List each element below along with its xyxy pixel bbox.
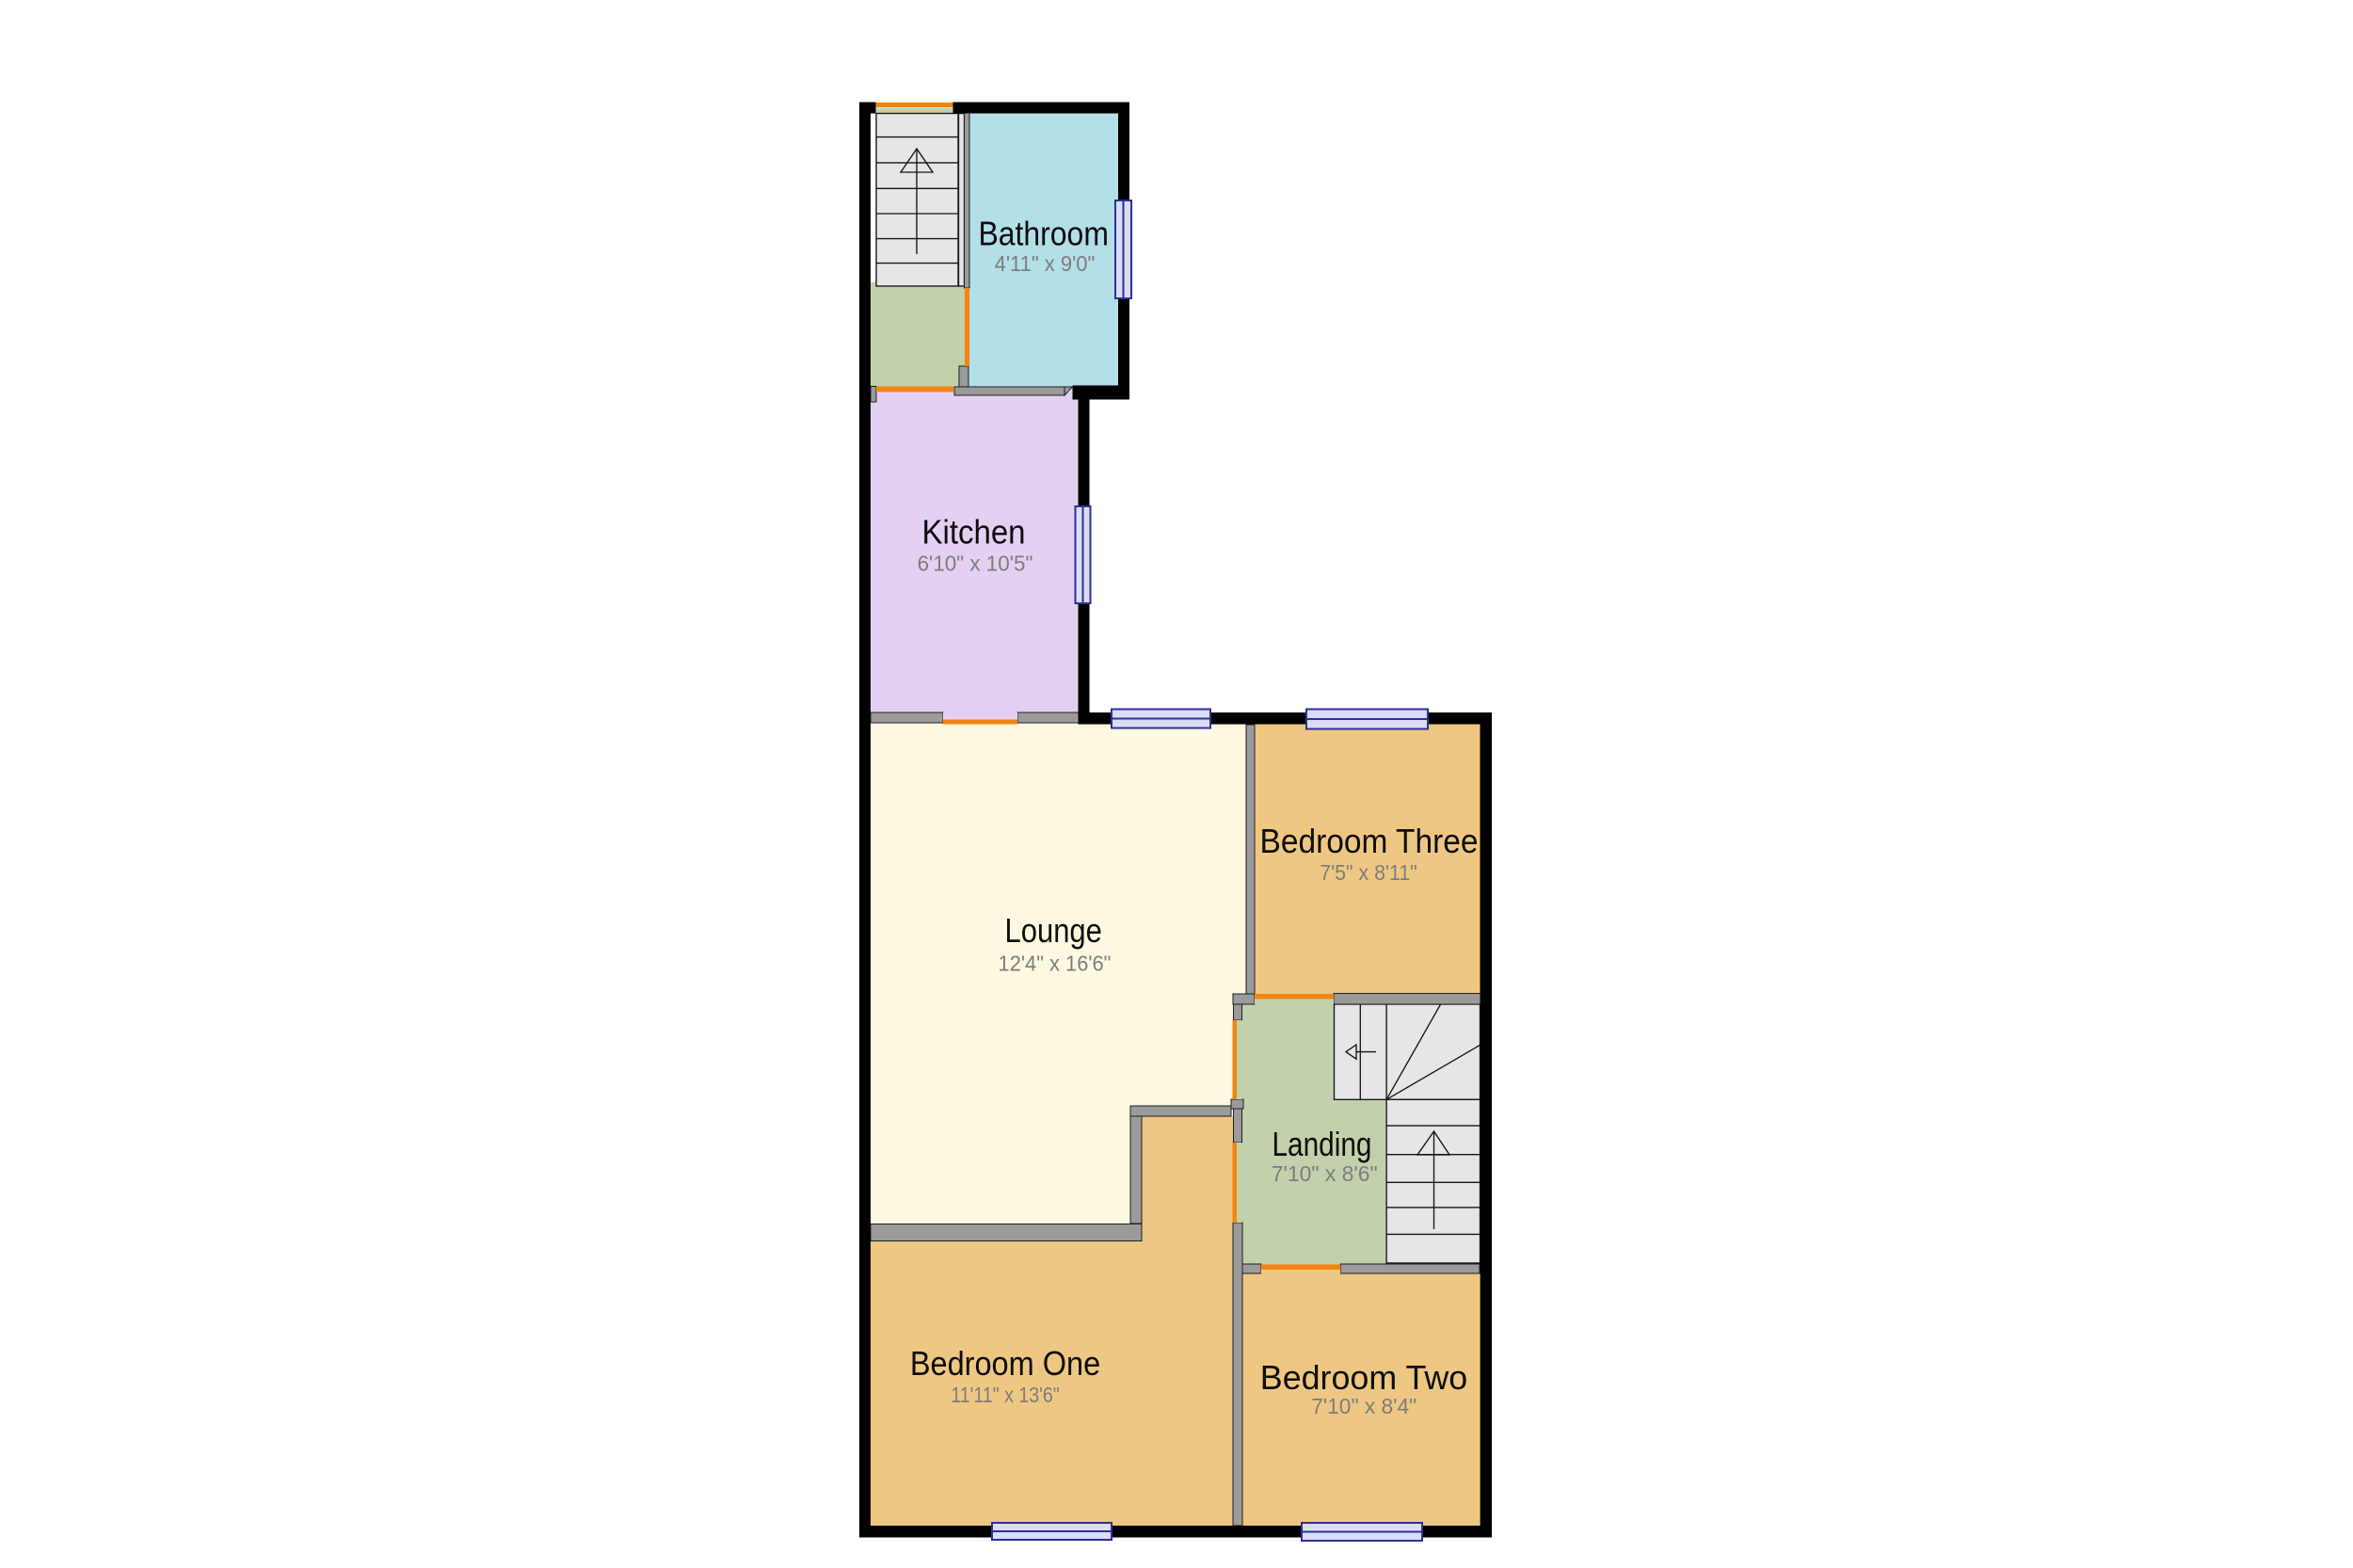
svg-text:12'4" x 16'6": 12'4" x 16'6" (999, 952, 1112, 976)
svg-text:Bedroom Two: Bedroom Two (1260, 1358, 1467, 1397)
svg-text:Lounge: Lounge (1005, 911, 1102, 950)
svg-text:7'5" x 8'11": 7'5" x 8'11" (1320, 860, 1417, 885)
svg-text:Kitchen: Kitchen (922, 513, 1026, 552)
svg-text:Bedroom Three: Bedroom Three (1260, 822, 1479, 860)
svg-text:Bathroom: Bathroom (978, 215, 1109, 253)
svg-text:4'11" x 9'0": 4'11" x 9'0" (995, 251, 1096, 276)
svg-text:Bedroom One: Bedroom One (910, 1344, 1100, 1383)
svg-text:6'10" x 10'5": 6'10" x 10'5" (918, 552, 1033, 576)
svg-text:7'10" x 8'6": 7'10" x 8'6" (1272, 1161, 1378, 1186)
svg-text:Landing: Landing (1273, 1125, 1372, 1163)
svg-text:7'10" x 8'4": 7'10" x 8'4" (1311, 1394, 1417, 1418)
svg-text:11'11" x 13'6": 11'11" x 13'6" (951, 1383, 1059, 1407)
